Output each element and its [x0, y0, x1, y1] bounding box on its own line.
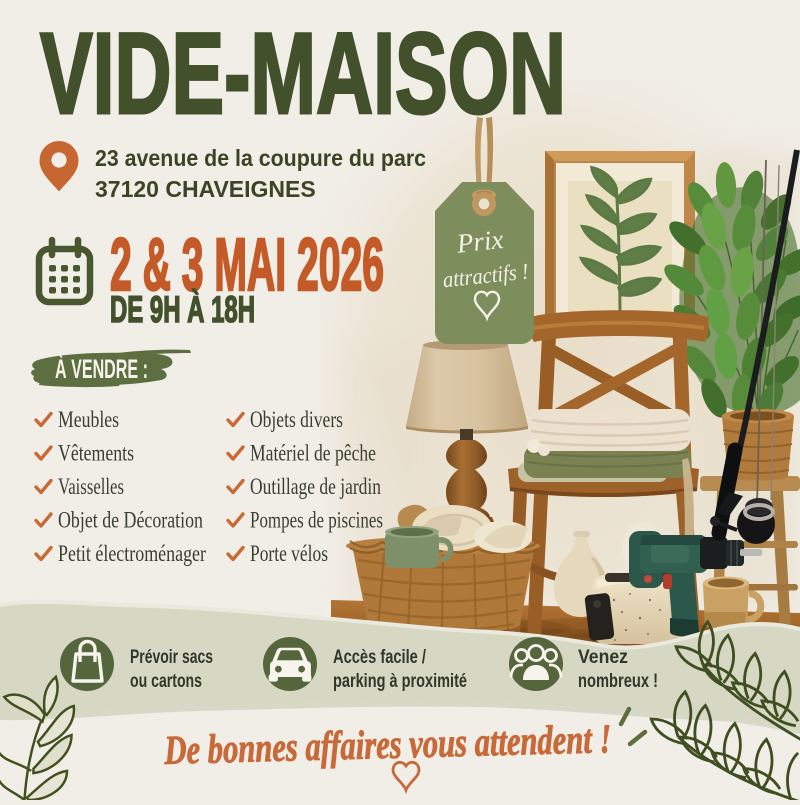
- svg-text:nombreux !: nombreux !: [578, 670, 658, 692]
- svg-text:Vaisselles: Vaisselles: [58, 474, 124, 499]
- svg-text:Pompes de piscines: Pompes de piscines: [250, 508, 383, 533]
- svg-text:23 avenue de la coupure du par: 23 avenue de la coupure du parc: [95, 145, 426, 171]
- svg-text:DE 9H À 18H: DE 9H À 18H: [110, 289, 255, 330]
- svg-text:Vêtements: Vêtements: [58, 441, 134, 466]
- svg-text:À VENDRE :: À VENDRE :: [55, 353, 148, 384]
- svg-text:37120 CHAVEIGNES: 37120 CHAVEIGNES: [95, 176, 316, 202]
- svg-text:Prévoir sacs: Prévoir sacs: [130, 646, 213, 668]
- svg-text:Accès facile /: Accès facile /: [333, 646, 426, 668]
- svg-text:VIDE-MAISON: VIDE-MAISON: [40, 10, 566, 138]
- svg-text:Petit électroménager: Petit électroménager: [58, 541, 206, 566]
- svg-text:ou cartons: ou cartons: [130, 670, 202, 692]
- svg-text:Objets divers: Objets divers: [250, 407, 343, 432]
- svg-text:parking à proximité: parking à proximité: [333, 670, 467, 692]
- svg-text:Meubles: Meubles: [58, 407, 119, 432]
- svg-text:Venez: Venez: [578, 646, 628, 668]
- svg-text:Matériel de pêche: Matériel de pêche: [250, 441, 376, 466]
- svg-text:Prix: Prix: [454, 224, 504, 259]
- svg-text:Outillage de jardin: Outillage de jardin: [250, 474, 381, 499]
- svg-text:Porte vélos: Porte vélos: [250, 541, 328, 566]
- svg-text:Objet de Décoration: Objet de Décoration: [58, 508, 203, 533]
